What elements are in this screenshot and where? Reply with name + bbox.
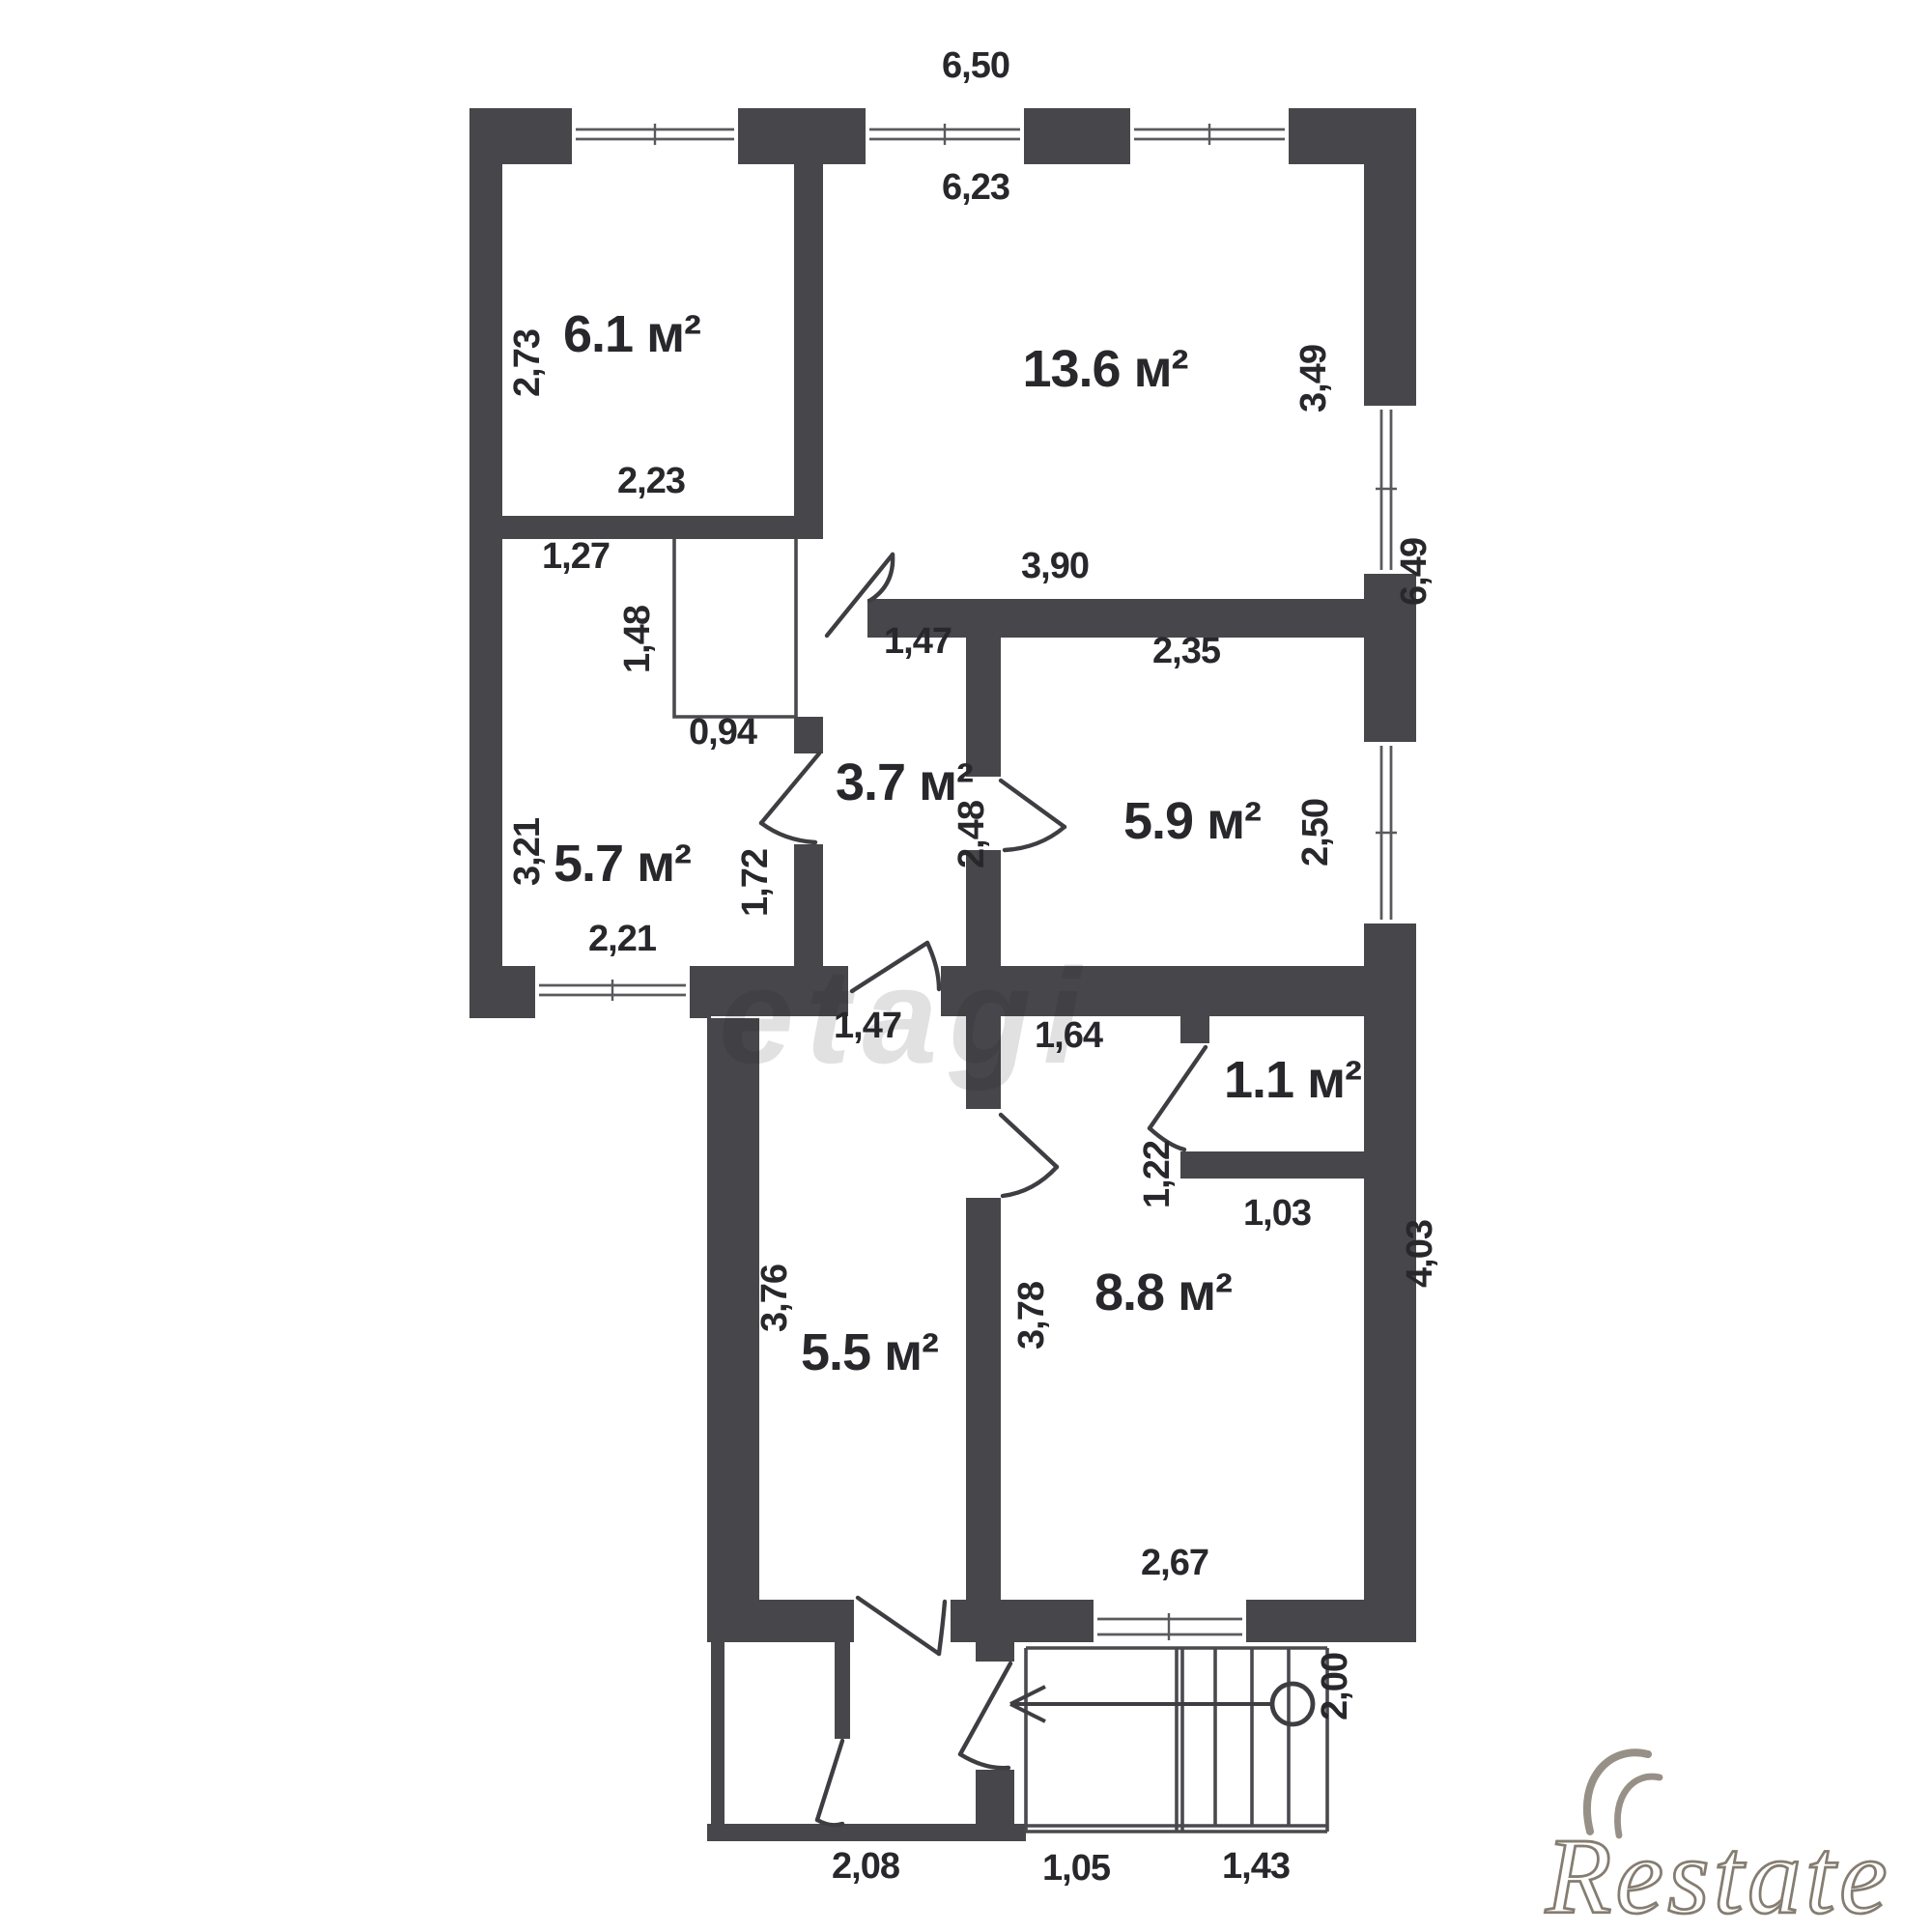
dimension-label-1: 6,23	[942, 167, 1009, 208]
dimension-label-7: 3,90	[1021, 546, 1089, 586]
window-top-3	[1130, 108, 1289, 164]
dimension-label-28: 1,43	[1222, 1846, 1290, 1887]
room-8-8: 8.8 м²	[1094, 1264, 1232, 1321]
dimension-label-2: 2,73	[507, 329, 548, 397]
window-top-2	[866, 108, 1024, 164]
dimension-label-14: 2,48	[952, 801, 992, 868]
door-5-5-vestibule	[858, 1598, 945, 1654]
room-1-1: 1.1 м²	[1224, 1051, 1361, 1109]
wall-1-1-left-a	[1180, 1016, 1209, 1043]
wall-5-7-hall-a	[794, 717, 823, 753]
dimension-label-3: 2,23	[617, 461, 685, 501]
window-bottom-left	[535, 966, 690, 1018]
wall-left	[469, 108, 502, 1018]
door-5-5-8-8	[1001, 1115, 1057, 1196]
dimension-label-10: 3,49	[1293, 345, 1334, 412]
dimension-label-25: 2,00	[1315, 1653, 1355, 1720]
window-bottom-stairs	[1094, 1600, 1246, 1654]
door-5-7	[761, 753, 819, 842]
room-6-1: 6.1 м²	[563, 305, 700, 363]
dimension-label-16: 2,21	[588, 919, 657, 959]
floorplan-page: 6.1 м²13.6 м²5.7 м²3.7 м²5.9 м²1.1 м²5.5…	[0, 0, 1932, 1932]
dimension-label-22: 3,78	[1011, 1282, 1052, 1350]
wall-bottom-band-1	[707, 1600, 854, 1642]
wall-divider-6-1	[794, 162, 823, 539]
wall-vestibule-right-b	[976, 1770, 1014, 1837]
stairs-start-circle	[1272, 1684, 1313, 1724]
floorplan-drawing: 6.1 м²13.6 м²5.7 м²3.7 м²5.9 м²1.1 м²5.5…	[0, 0, 1932, 1932]
dimension-label-20: 1,03	[1243, 1193, 1311, 1234]
stairs-direction-arrow	[1010, 1684, 1313, 1724]
wall-1-1-bottom	[1180, 1151, 1416, 1179]
room-5-9: 5.9 м²	[1123, 792, 1261, 850]
dimension-label-4: 1,27	[542, 536, 610, 577]
door-1-1	[1150, 1047, 1206, 1150]
wall-vestibule-left	[711, 1642, 724, 1837]
dimension-label-9: 2,35	[1152, 631, 1221, 671]
dimension-label-26: 2,08	[832, 1846, 899, 1887]
wall-divider-d3	[966, 1198, 1001, 1600]
dimension-label-23: 4,03	[1400, 1220, 1440, 1288]
dimension-label-13: 3,21	[507, 817, 548, 886]
wall-bottom-band-3	[1246, 1600, 1416, 1642]
room-5-5: 5.5 м²	[801, 1323, 938, 1381]
dimension-label-6: 0,94	[689, 712, 757, 753]
stairs	[1010, 1648, 1327, 1832]
dimension-label-27: 1,05	[1042, 1848, 1111, 1889]
dimension-label-21: 3,76	[754, 1264, 795, 1332]
dimension-label-8: 1,47	[884, 621, 952, 662]
wall-bottom-band-2	[951, 1600, 1094, 1642]
watermark-corner-text: Restate	[1545, 1817, 1891, 1932]
watermark-restate: Restate	[1545, 1752, 1891, 1932]
dimension-label-24: 2,67	[1141, 1543, 1208, 1583]
dimension-label-5: 1,48	[617, 606, 658, 673]
door-5-9	[1001, 781, 1065, 850]
door-vestibule-divider	[817, 1741, 842, 1825]
dimension-label-11: 6,49	[1394, 538, 1435, 606]
dimension-label-19: 1,22	[1137, 1141, 1178, 1208]
closet-outline	[674, 539, 796, 717]
wall-lower-left	[707, 1018, 759, 1642]
dimension-label-0: 6,50	[942, 45, 1009, 86]
dimension-label-12: 2,50	[1295, 799, 1336, 867]
door-entry	[960, 1663, 1010, 1768]
room-5-7: 5.7 м²	[554, 835, 691, 893]
window-top-1	[572, 108, 738, 164]
window-right-2	[1364, 742, 1416, 923]
watermark-center: etagi	[719, 940, 1093, 1092]
wall-vestibule-divider	[835, 1642, 850, 1739]
wall-vestibule-right-a	[976, 1642, 1014, 1662]
room-13-6: 13.6 м²	[1022, 340, 1187, 398]
dimension-label-15: 1,72	[735, 849, 776, 917]
